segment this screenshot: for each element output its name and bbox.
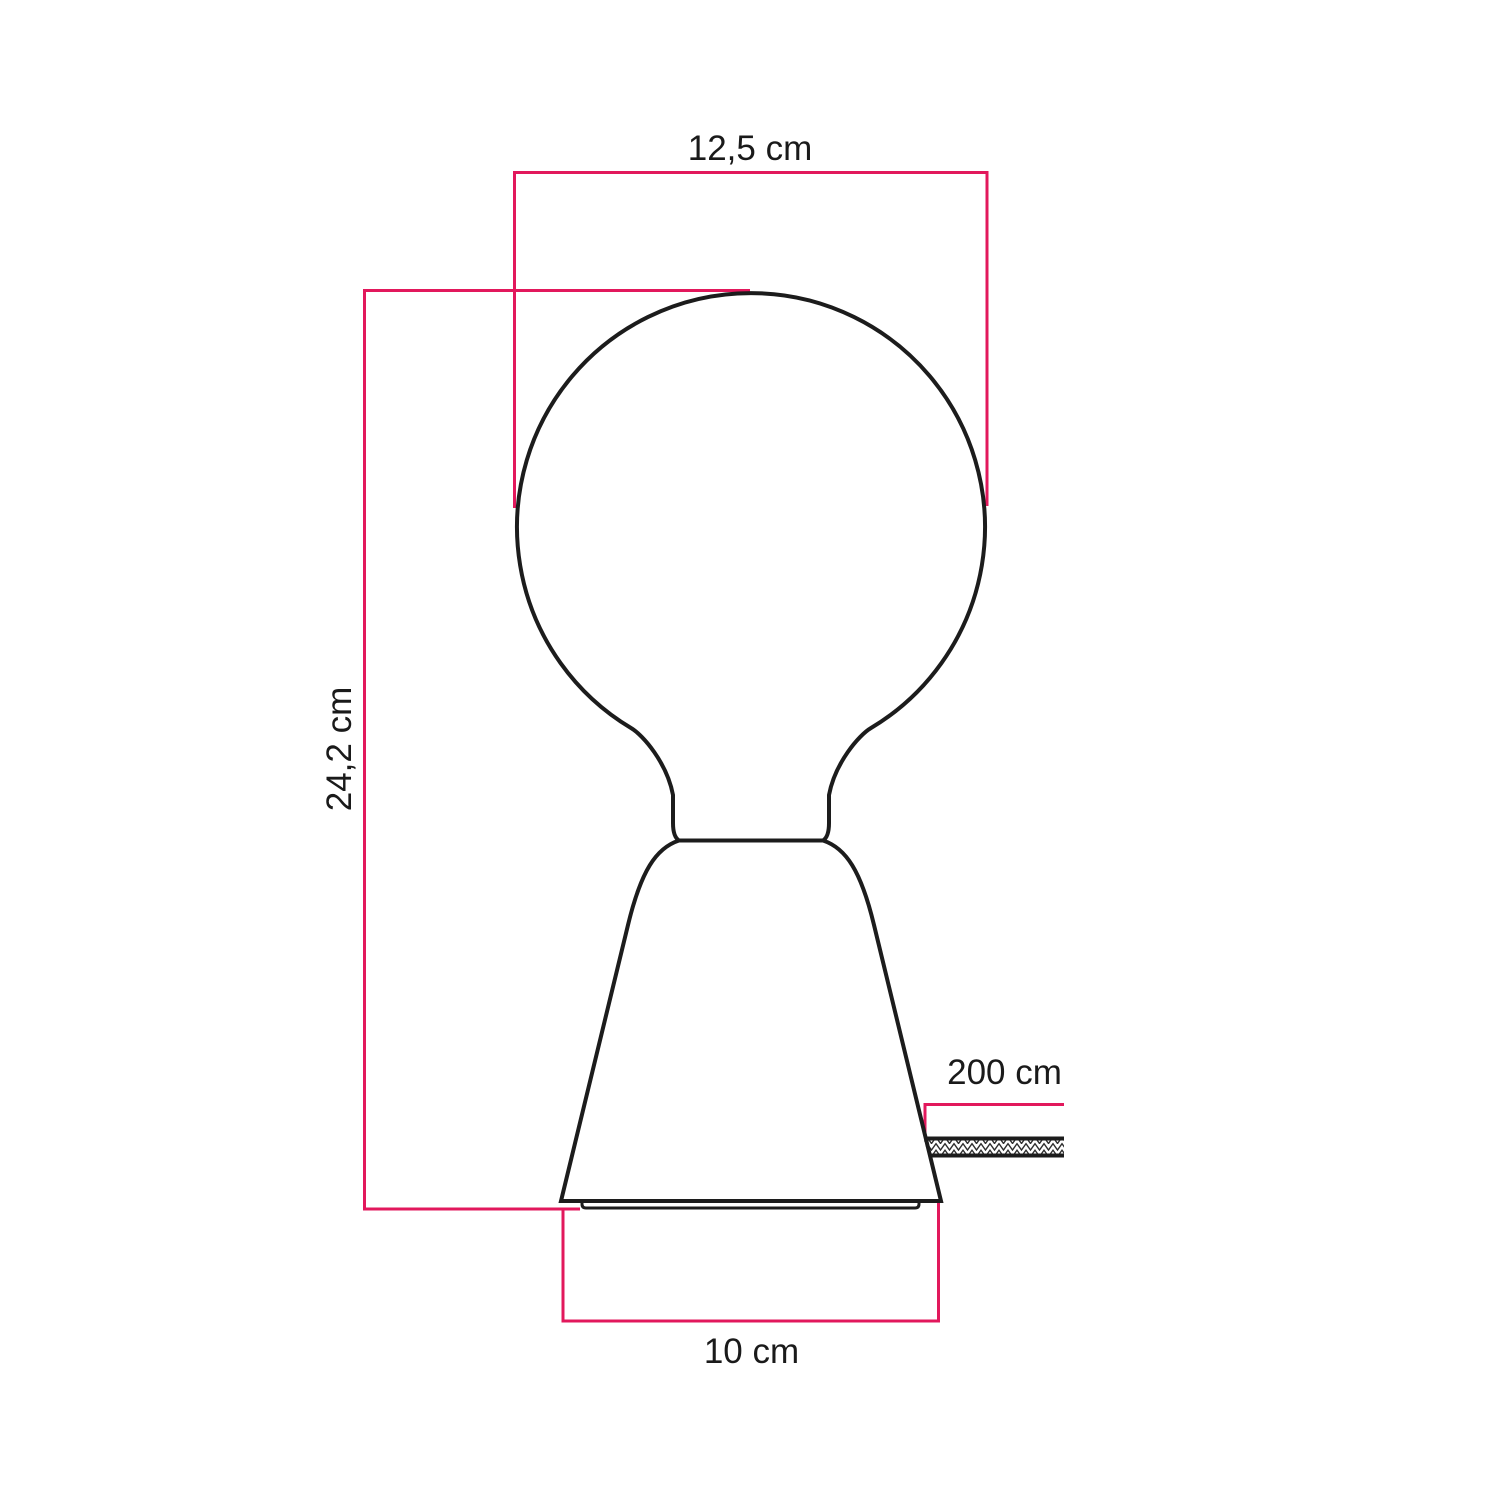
svg-text:12,5 cm: 12,5 cm xyxy=(688,129,813,168)
svg-text:200 cm: 200 cm xyxy=(947,1053,1062,1092)
svg-text:24,2 cm: 24,2 cm xyxy=(320,687,359,812)
svg-text:10 cm: 10 cm xyxy=(704,1332,799,1371)
